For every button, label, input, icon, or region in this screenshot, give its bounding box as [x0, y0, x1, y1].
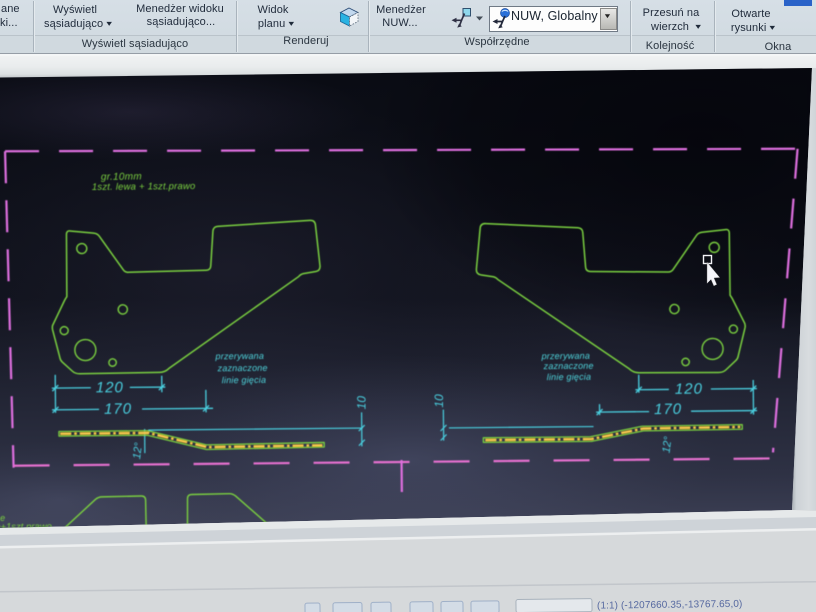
svg-text:1szt. lewa + 1szt.prawo: 1szt. lewa + 1szt.prawo: [92, 181, 196, 193]
svg-text:120: 120: [96, 379, 124, 396]
svg-text:10: 10: [354, 396, 368, 410]
svg-text:12°: 12°: [661, 435, 675, 454]
svg-text:przerywana: przerywana: [214, 351, 264, 361]
svg-text:(1:1) (-1207660.35,-13767.65,: (1:1) (-1207660.35,-13767.65,0): [597, 599, 743, 612]
svg-text:12°: 12°: [131, 441, 145, 460]
svg-text:10: 10: [432, 394, 446, 408]
svg-text:zaznaczone: zaznaczone: [543, 361, 594, 371]
svg-text:e: e: [0, 513, 5, 523]
svg-text:170: 170: [654, 401, 682, 418]
svg-text:120: 120: [675, 381, 703, 398]
svg-text:zaznaczone: zaznaczone: [217, 363, 268, 373]
svg-text:przerywana: przerywana: [540, 351, 590, 361]
svg-text:linie gięcia: linie gięcia: [547, 372, 592, 382]
svg-text:linie gięcia: linie gięcia: [222, 375, 267, 385]
svg-text:170: 170: [104, 401, 132, 418]
